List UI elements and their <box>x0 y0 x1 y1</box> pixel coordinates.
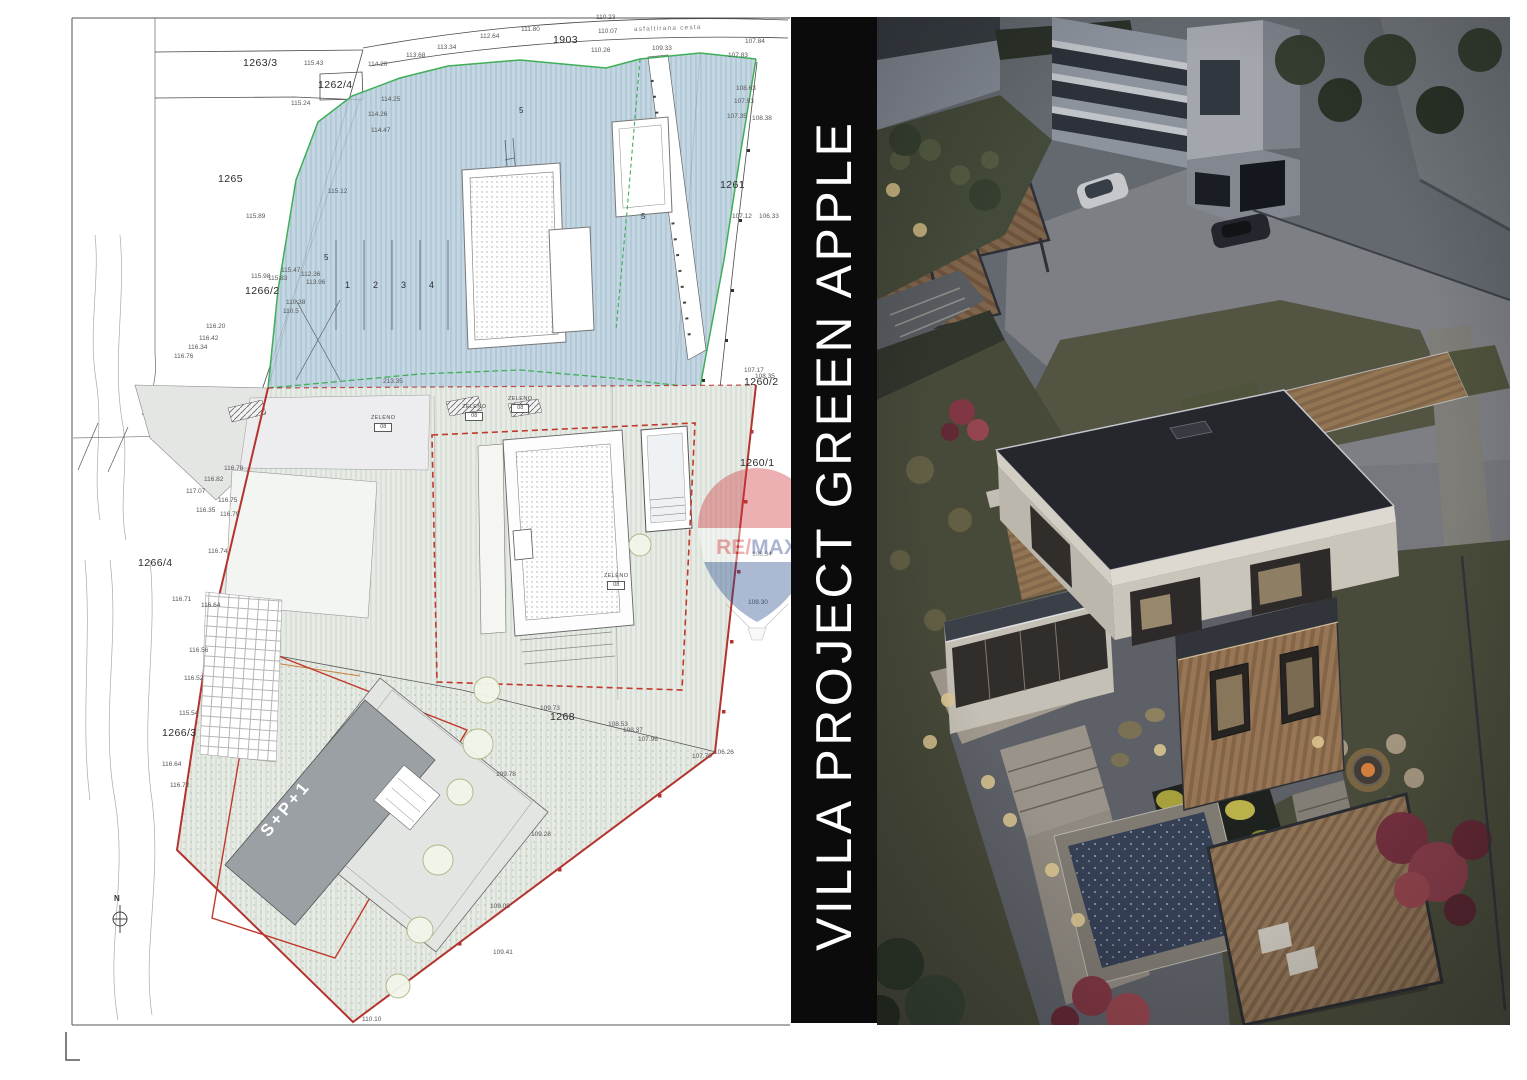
north-arrow <box>113 905 127 933</box>
title-banner: VILLA PROJECT GREEN APPLE <box>791 17 877 1023</box>
existing-building-3 <box>549 227 594 333</box>
planned-pool-footprint <box>641 426 692 532</box>
contour-lines <box>73 18 175 1020</box>
existing-building-2 <box>612 117 672 217</box>
villa-render <box>877 17 1510 1025</box>
project-title: VILLA PROJECT GREEN APPLE <box>791 17 877 1023</box>
balloon-basket <box>748 628 766 640</box>
blue-zone <box>268 53 756 388</box>
vignette <box>877 17 1510 1025</box>
listing-composite: 1263/31262/412651266/21266/41266/3190312… <box>0 0 1527 1080</box>
remax-wordmark: RE/MAX <box>716 536 798 559</box>
